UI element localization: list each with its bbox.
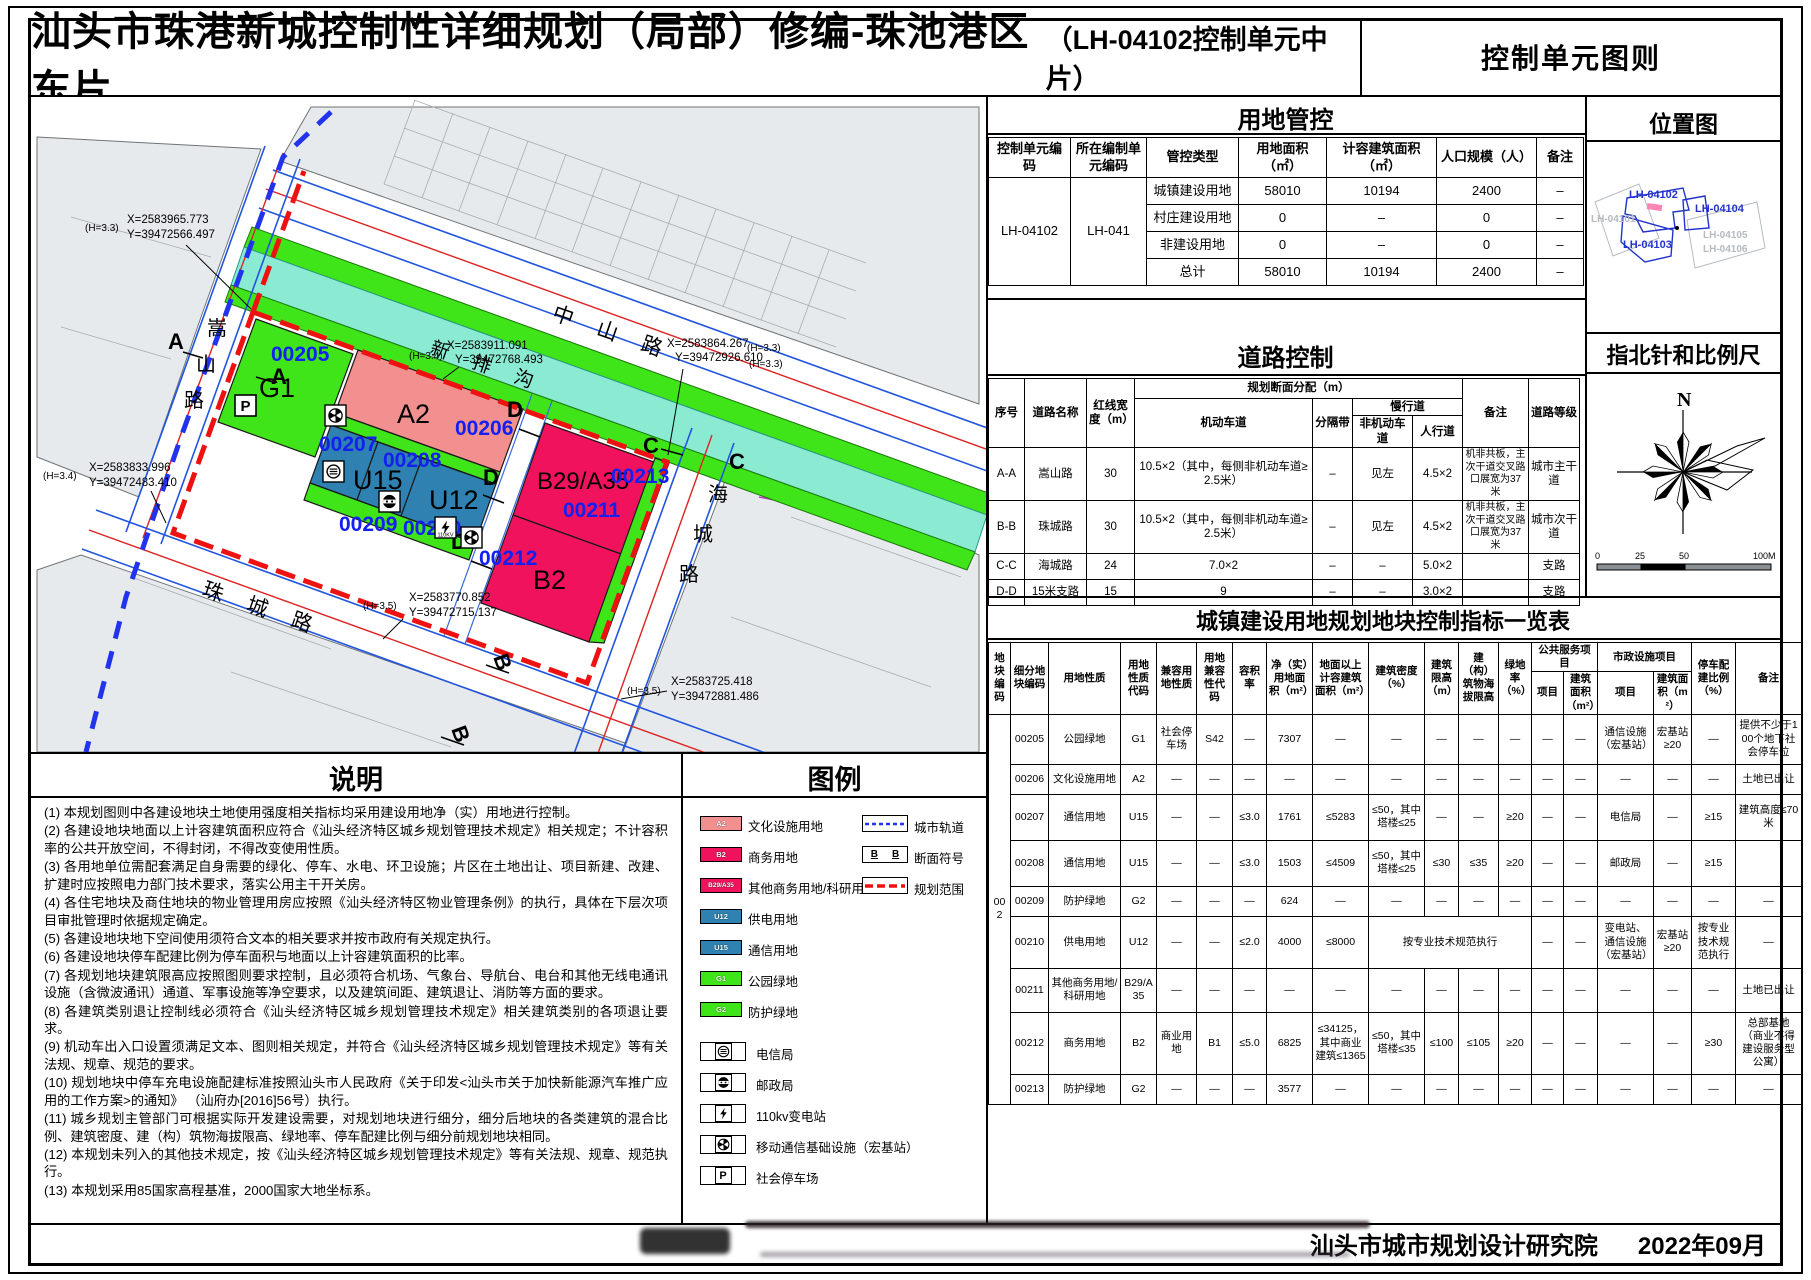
title-right-cell: 控制单元图则 [1362, 21, 1780, 93]
unit-label: LH-04101 [1591, 214, 1636, 225]
legend-label: 移动通信基础设施（宏基站） [756, 1137, 919, 1156]
macro-station-icon [461, 527, 482, 548]
plan-map-svg: A A B B C C D D D 中 山 路 新 排 沟 珠 城 路 嵩 山 … [31, 97, 986, 752]
coord-y: Y=39472768.493 [455, 354, 543, 366]
section-c-label: C [729, 449, 745, 474]
design-institute: 汕头市城市规划设计研究院 [1310, 1226, 1598, 1261]
table-row: D-D15米支路 159 –– 3.0×2 支路 [989, 580, 1580, 606]
legend-swatch-g2: G2 [700, 1002, 742, 1017]
svg-text:P: P [240, 398, 250, 415]
table-header-row: 控制单元编码 所在编制单元编码 管控类型 用地面积（㎡） 计容建筑面积（㎡） 人… [989, 138, 1584, 178]
table-row: 00206文化设施用地 A2— —— —— —— —— —— —— —土地已出让 [989, 764, 1802, 794]
legend-macro-station-icon [700, 1135, 746, 1154]
parking-icon: P [235, 395, 256, 416]
table-row: LH-04102 LH-041 城镇建设用地 58010 10194 2400 … [989, 178, 1584, 205]
note-item: (10) 规划地块中停车充电设施配建标准按照汕头市人民政府《关于印发<汕头市关于… [44, 1074, 668, 1109]
unit-label: LH-04103 [1623, 239, 1672, 251]
road-songshan: 路 [184, 389, 204, 412]
label-a2: A2 [397, 399, 430, 429]
plan-sheet: 汕头市珠港新城控制性详细规划（局部）修编-珠池港区东片 （LH-04102控制单… [0, 0, 1811, 1280]
landuse-control-title: 用地管控 [988, 100, 1583, 135]
svg-text:50: 50 [1679, 551, 1689, 561]
compass-title: 指北针和比例尺 [1587, 338, 1780, 370]
label-g1: G1 [259, 373, 295, 403]
note-item: (12) 本规划未列入的其他技术规定，按《汕头经济特区城乡规划管理技术规定》等有… [44, 1146, 668, 1181]
coord-h: (H=3.5) [363, 601, 397, 612]
svg-text:0: 0 [1595, 551, 1600, 561]
coord-y: Y=39472483.410 [89, 477, 177, 489]
note-item: (11) 城乡规划主管部门可根据实际开发建设需要，对规划地块进行细分，细分后地块… [44, 1110, 668, 1145]
coord-x: X=2583965.773 [127, 214, 209, 226]
notes-list: (1) 本规划图则中各建设地块土地使用强度相关指标均采用建设用地净（实）用地进行… [44, 804, 668, 1216]
legend-swatch-b29: B29/A35 [700, 878, 742, 893]
coord-x: X=2583864.267 [667, 338, 749, 350]
coord-y: Y=39472566.497 [127, 229, 215, 241]
road-control-title: 道路控制 [988, 338, 1583, 373]
legend-label: 社会停车场 [756, 1168, 819, 1187]
table-row: 00212商务用地 B2商业用地 B1≤5.0 6825≤34125，其中商业建… [989, 1012, 1802, 1074]
coord-y: Y=39472881.486 [671, 691, 759, 703]
note-item: (3) 各用地单位需配套满足自身需要的绿化、停车、水电、环卫设施；片区在土地出让… [44, 858, 668, 893]
legend-label: 商务用地 [748, 847, 798, 866]
legend-label: 邮政局 [756, 1075, 794, 1094]
table-row: 00213防护绿地 G2— —— 3577— —— —— —— —— —— [989, 1074, 1802, 1104]
note-item: (2) 各建设地块地面以上计容建筑面积应符合《汕头经济特区城乡规划管理技术规定》… [44, 822, 668, 857]
substation-icon: 110KV [435, 517, 456, 539]
note-item: (4) 各住宅地块及商住地块的物业管理用房应按照《汕头经济特区物业管理条例》的执… [44, 894, 668, 929]
coord-h: (H=3.4) [409, 351, 443, 362]
section-c-label: C [643, 433, 659, 458]
scan-smudge [640, 1228, 730, 1254]
coord-x: X=2583911.091 [447, 340, 528, 352]
block-code-cell: 002 [989, 714, 1011, 1104]
legend-label: 城市轨道 [914, 817, 964, 836]
legend-label: 110kv变电站 [756, 1106, 826, 1125]
svg-text:100M: 100M [1753, 551, 1776, 561]
note-item: (8) 各建筑类别退让控制线必须符合《汕头经济特区城乡规划管理技术规定》相关建筑… [44, 1003, 668, 1038]
unit-label: LH-04102 [1629, 189, 1678, 201]
section-d-label: D [483, 465, 499, 490]
svg-text:110KV: 110KV [437, 533, 453, 539]
code-00205: 00205 [271, 343, 330, 366]
legend-boundary-sample [862, 877, 908, 894]
note-item: (5) 各建设地块地下空间使用须符合文本的相关要求并按市政府有关规定执行。 [44, 930, 668, 947]
legend-swatch-u15: U15 [700, 940, 742, 955]
plot-table-title: 城镇建设用地规划地块控制指标一览表 [988, 604, 1778, 636]
legend-swatch-b2: B2 [700, 847, 742, 862]
north-arrow: N [1617, 389, 1765, 534]
road-haicheng: 路 [679, 563, 699, 586]
legend-label: 其他商务用地/科研用地 [748, 878, 876, 897]
legend-metro-sample [862, 815, 908, 832]
coord-h: (H=3.3) [85, 223, 119, 234]
road-control-table: 序号 道路名称 红线宽度（m） 规划断面分配（m） 备注 道路等级 机动车道 分… [988, 378, 1580, 606]
legend-swatch-g1: G1 [700, 971, 742, 986]
title-bar: 汕头市珠港新城控制性详细规划（局部）修编-珠池港区东片 （LH-04102控制单… [31, 21, 1360, 93]
table-row: 002 00205公园绿地 G1社会停车场 S42— 7307— —— —— —… [989, 714, 1802, 764]
page-title-sub: （LH-04102控制单元中片） [1046, 18, 1360, 96]
coord-h: (H=3.3) [747, 343, 781, 354]
note-item: (1) 本规划图则中各建设地块土地使用强度相关指标均采用建设用地净（实）用地进行… [44, 804, 668, 821]
code-00212: 00212 [479, 547, 537, 570]
unit-code-cell: LH-04102 [989, 178, 1071, 286]
location-map-title: 位置图 [1587, 105, 1780, 139]
legend-label: 文化设施用地 [748, 816, 823, 835]
plot-control-table: 地块编码 细分地块编码 用地性质 用地性质代码 兼容用地性质 用地兼容性代码 容… [988, 642, 1802, 1105]
svg-text:N: N [1677, 389, 1692, 411]
note-item: (9) 机动车出入口设置须满足文本、图则相关规定，并符合《汕头经济特区城乡规划管… [44, 1038, 668, 1073]
legend-label: 断面符号 [914, 848, 964, 867]
legend-title: 图例 [683, 758, 986, 797]
road-songshan: 嵩 [207, 317, 227, 340]
legend-label: 供电用地 [748, 909, 798, 928]
parent-code-cell: LH-041 [1071, 178, 1147, 286]
legend-substation-icon [700, 1104, 746, 1123]
note-item: (7) 各规划地块建筑限高应按照图则要求控制，且必须符合机场、气象台、导航台、电… [44, 967, 668, 1002]
code-00206: 00206 [455, 417, 513, 440]
telecom-icon [323, 461, 344, 482]
svg-text:25: 25 [1635, 551, 1645, 561]
plan-map: A A B B C C D D D 中 山 路 新 排 沟 珠 城 路 嵩 山 … [31, 97, 986, 752]
table-row: 00210供电用地 U12— —≤2.0 4000≤8000 按专业技术规范执行… [989, 916, 1802, 968]
legend-label: 电信局 [756, 1044, 794, 1063]
road-haicheng: 海 [708, 483, 728, 506]
table-row: 00208通信用地 U15— —≤3.0 1503≤4509 ≤50，其中塔楼≤… [989, 840, 1802, 886]
post-office-icon [379, 491, 400, 512]
scale-bar: 0 25 50 100M [1595, 551, 1776, 570]
legend-swatch-u12: U12 [700, 909, 742, 924]
label-b2: B2 [533, 565, 566, 595]
table-header-row: 序号 道路名称 红线宽度（m） 规划断面分配（m） 备注 道路等级 [989, 379, 1580, 399]
unit-label: LH-04105 [1703, 230, 1748, 241]
legend-label: 防护绿地 [748, 1002, 798, 1021]
table-row: B-B珠城路 3010.5×2（其中，每侧非机动车道≥2.5米） –见左 4.5… [989, 501, 1580, 554]
coord-x: X=2583833.996 [89, 462, 171, 474]
coord-h: (H=3.4) [43, 471, 77, 482]
coord-y: Y=39472715.137 [409, 607, 497, 619]
legend-telecom-icon [700, 1042, 746, 1061]
legend-section-sample: B B [862, 846, 908, 863]
table-row: A-A嵩山路 3010.5×2（其中，每侧非机动车道≥2.5米） –见左 4.5… [989, 448, 1580, 501]
location-map: LH-04101 LH-04102 LH-04103 LH-04104 LH-0… [1587, 142, 1780, 335]
legend-label: 规划范围 [914, 879, 964, 898]
coord-x: X=2583725.418 [671, 676, 753, 688]
compass-and-scale: N 0 25 50 100M [1587, 374, 1780, 599]
legend-label: 通信用地 [748, 940, 798, 959]
label-u12: U12 [429, 485, 479, 515]
unit-label: LH-04104 [1695, 203, 1745, 215]
note-item: (6) 各建设地块停车配建比例为停车面积与地面以上计容建筑面积的比率。 [44, 948, 668, 965]
coord-x: X=2583770.852 [409, 592, 491, 604]
unit-label: LH-04106 [1703, 244, 1748, 255]
table-row: C-C海城路 247.0×2 –– 5.0×2 支路 [989, 554, 1580, 580]
coord-h: (H=3.3) [749, 359, 783, 370]
sheet-type-label: 控制单元图则 [1481, 37, 1661, 77]
code-00213: 00213 [611, 465, 669, 488]
road-haicheng: 城 [693, 523, 713, 546]
legend-post-icon [700, 1073, 746, 1092]
table-row: 00209防护绿地 G2— —— 624— —— —— —— —— —— [989, 886, 1802, 916]
macro-station-icon [325, 405, 346, 426]
table-row: 00207通信用地 U15— —≤3.0 1761≤5283 ≤50，其中塔楼≤… [989, 794, 1802, 840]
landuse-control-table: 控制单元编码 所在编制单元编码 管控类型 用地面积（㎡） 计容建筑面积（㎡） 人… [988, 137, 1584, 286]
notes-title: 说明 [31, 758, 681, 797]
scan-smudge [760, 1252, 1350, 1257]
code-00209: 00209 [339, 513, 397, 536]
section-a-label: A [168, 329, 184, 354]
issue-date: 2022年09月 [1638, 1226, 1766, 1261]
legend-swatch-a2: A2 [700, 816, 742, 831]
legend-parking-icon: P [700, 1166, 746, 1185]
scan-smudge [745, 1221, 1370, 1228]
note-item: (13) 本规划采用85国家高程基准，2000国家大地坐标系。 [44, 1182, 668, 1199]
table-header-row: 地块编码 细分地块编码 用地性质 用地性质代码 兼容用地性质 用地兼容性代码 容… [989, 643, 1802, 672]
code-00207: 00207 [319, 433, 377, 456]
code-00211: 00211 [563, 499, 621, 522]
code-00208: 00208 [383, 449, 442, 472]
legend-label: 公园绿地 [748, 971, 798, 990]
table-row: 00211其他商务用地/科研用地 B29/A35— —— —— —— —— ——… [989, 968, 1802, 1012]
road-songshan: 山 [196, 353, 216, 376]
